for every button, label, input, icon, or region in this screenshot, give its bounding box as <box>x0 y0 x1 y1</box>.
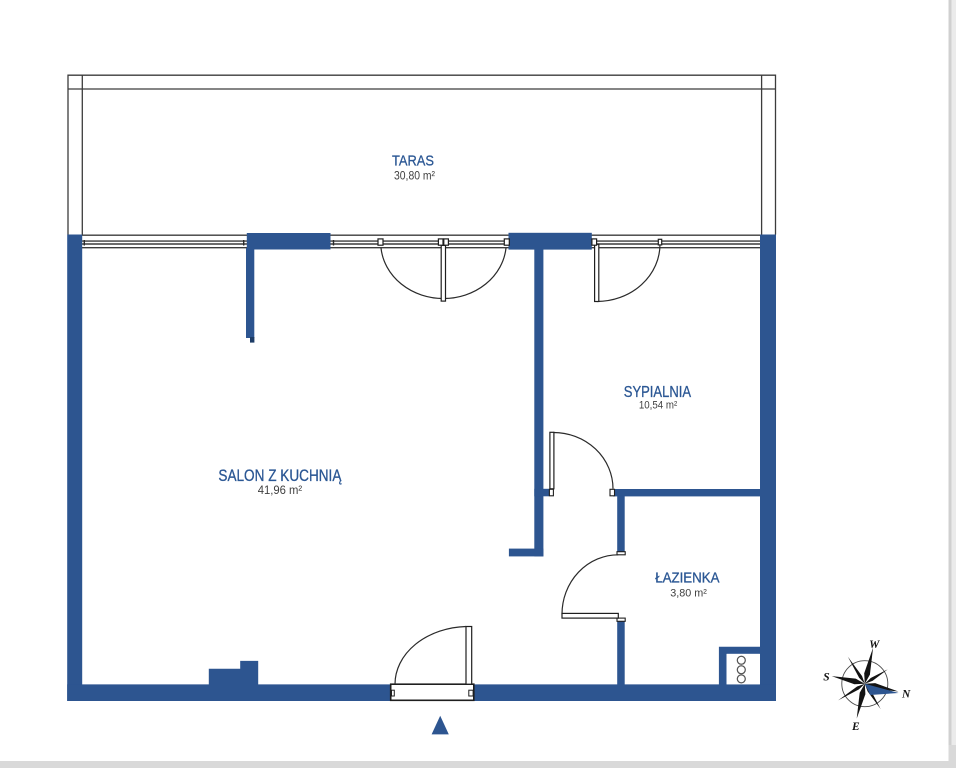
svg-text:ŁAZIENKA: ŁAZIENKA <box>655 571 720 587</box>
svg-text:N: N <box>901 688 911 700</box>
svg-text:10,54 m²: 10,54 m² <box>639 400 677 412</box>
svg-text:E: E <box>851 721 860 733</box>
svg-text:TARAS: TARAS <box>392 153 434 170</box>
svg-text:SYPIALNIA: SYPIALNIA <box>624 384 692 401</box>
svg-text:W: W <box>869 639 880 651</box>
svg-text:30,80 m²: 30,80 m² <box>394 168 435 182</box>
svg-text:41,96 m²: 41,96 m² <box>258 483 303 497</box>
svg-text:3,80 m²: 3,80 m² <box>670 587 707 599</box>
svg-text:S: S <box>823 671 829 683</box>
